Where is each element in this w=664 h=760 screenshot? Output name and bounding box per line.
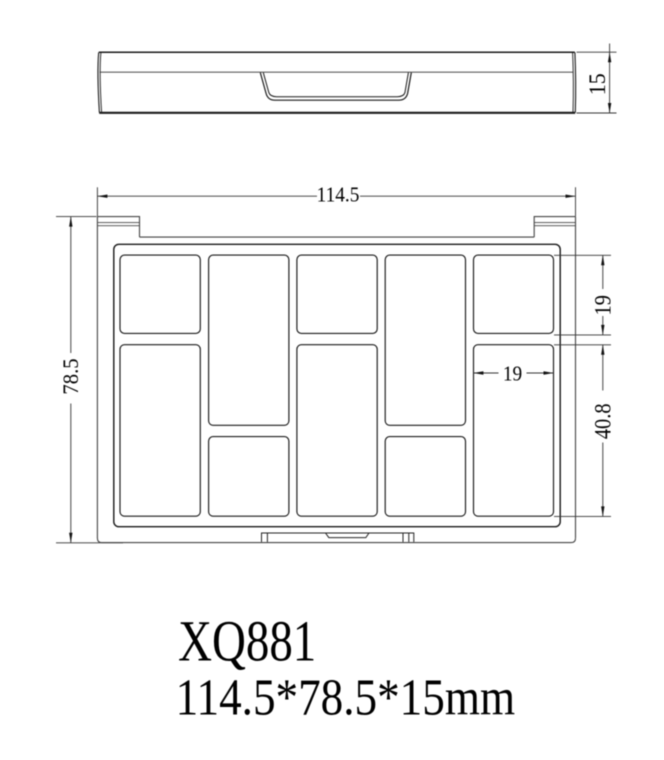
svg-text:40.8: 40.8 — [590, 403, 615, 439]
svg-text:XQ881: XQ881 — [178, 610, 316, 674]
svg-text:78.5: 78.5 — [58, 358, 83, 394]
svg-text:15: 15 — [584, 73, 610, 95]
svg-text:19: 19 — [590, 295, 615, 315]
svg-text:114.5: 114.5 — [317, 184, 360, 207]
svg-text:19: 19 — [503, 363, 522, 386]
svg-text:114.5*78.5*15mm: 114.5*78.5*15mm — [176, 670, 515, 726]
